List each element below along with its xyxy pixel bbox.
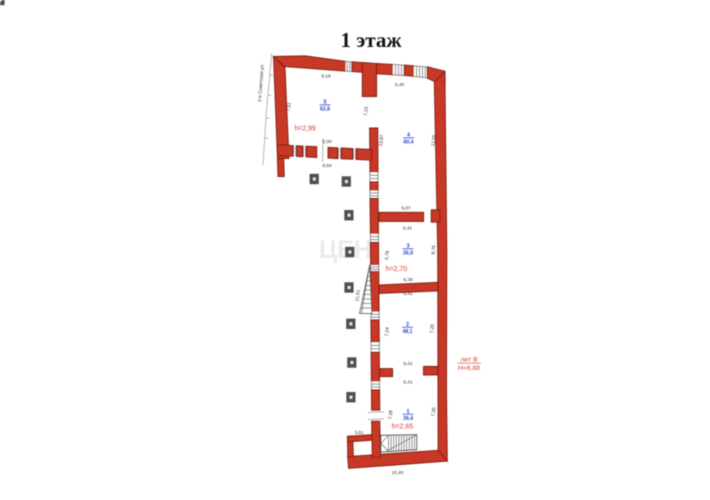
svg-text:8,19: 8,19	[321, 74, 331, 79]
svg-text:10,40: 10,40	[392, 470, 404, 475]
svg-text:Н=6,88: Н=6,88	[458, 365, 480, 372]
svg-text:8,76: 8,76	[431, 245, 437, 255]
svg-text:7,26: 7,26	[429, 324, 435, 334]
svg-text:8,94: 8,94	[322, 163, 332, 168]
svg-text:80,4: 80,4	[403, 140, 413, 146]
svg-text:1 этаж: 1 этаж	[340, 28, 402, 52]
svg-text:36,9: 36,9	[403, 251, 413, 257]
svg-text:7,51: 7,51	[286, 102, 292, 112]
svg-text:48,1: 48,1	[402, 329, 412, 335]
svg-text:6,40: 6,40	[395, 82, 405, 87]
svg-text:6,07: 6,07	[401, 206, 411, 211]
svg-text:21,61: 21,61	[355, 289, 361, 302]
svg-text:62,8: 62,8	[320, 107, 330, 113]
svg-text:5,78: 5,78	[384, 250, 390, 260]
svg-text:6,41: 6,41	[403, 380, 413, 385]
svg-text:6,41: 6,41	[403, 291, 413, 296]
svg-text:39,4: 39,4	[403, 416, 413, 422]
svg-text:7,35: 7,35	[431, 407, 437, 417]
svg-text:2-я Советская ул.: 2-я Советская ул.	[257, 64, 265, 102]
svg-text:h=2,70: h=2,70	[386, 266, 407, 273]
svg-text:h=2,99: h=2,99	[295, 126, 316, 133]
svg-text:лит В: лит В	[460, 356, 478, 363]
svg-text:7,23: 7,23	[363, 106, 369, 116]
svg-text:13,87: 13,87	[378, 134, 384, 147]
svg-text:6,39: 6,39	[403, 277, 413, 282]
svg-text:6,41: 6,41	[403, 226, 413, 231]
svg-text:7,28: 7,28	[388, 410, 394, 420]
svg-text:5,00: 5,00	[322, 139, 332, 144]
svg-text:h=2,65: h=2,65	[392, 424, 413, 431]
svg-text:6,41: 6,41	[403, 361, 413, 366]
svg-text:3,61: 3,61	[354, 430, 364, 435]
svg-text:7,24: 7,24	[384, 327, 390, 337]
